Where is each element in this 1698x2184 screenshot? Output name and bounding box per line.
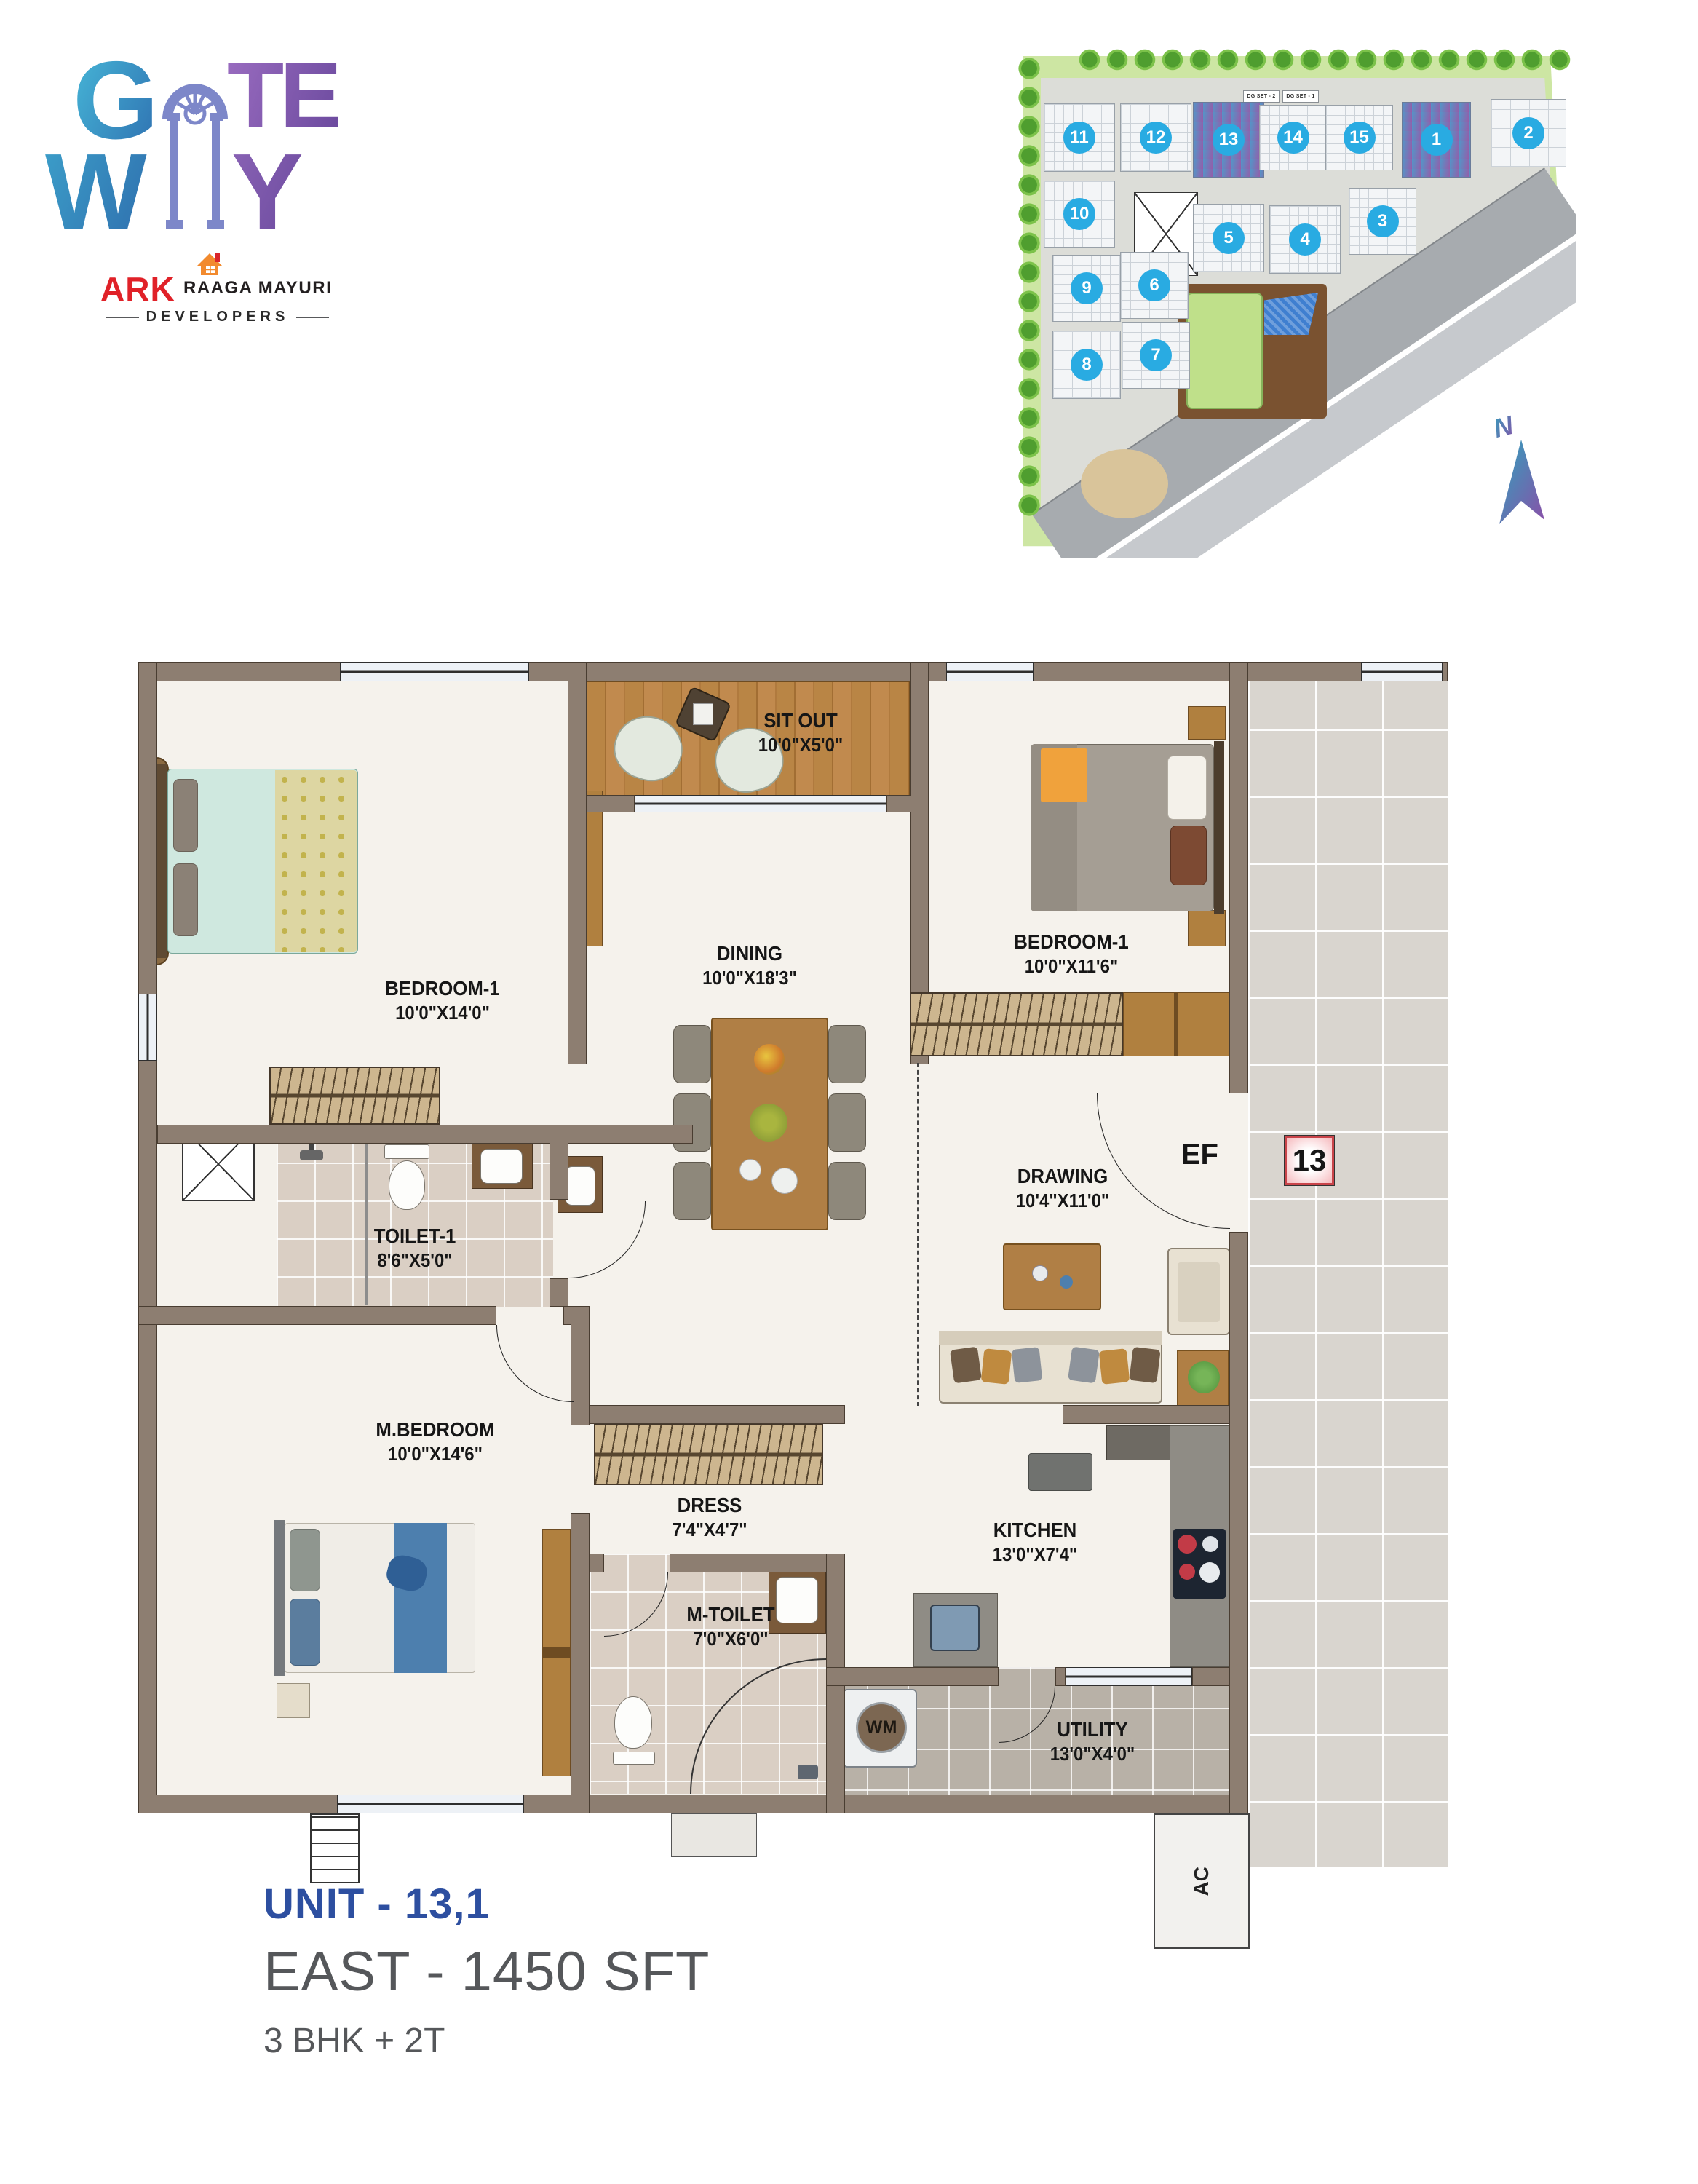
- label-bedroomR: BEDROOM-110'0"X11'6": [1014, 929, 1128, 978]
- wall-sitout-stub-left: [587, 795, 635, 812]
- common-corridor-floor: [1248, 662, 1448, 1867]
- tree-row-top: [1076, 44, 1576, 77]
- block-1-highlighted: 1: [1402, 102, 1471, 178]
- label-dress: DRESS7'4"X4'7": [672, 1492, 747, 1542]
- developer-abbr: ARK: [100, 269, 175, 309]
- brochure-page: G TE W Y ARK RAAGA MAYURI: [0, 0, 1698, 2184]
- wardrobe-bedroomL: [269, 1067, 440, 1125]
- wall-dress-top: [590, 1405, 845, 1424]
- ledge: [671, 1813, 757, 1857]
- logo-letters-te: TE: [227, 50, 338, 143]
- label-utility: UTILITY13'0"X4'0": [1050, 1717, 1135, 1766]
- dg-set-2-label: DG SET - 2: [1243, 90, 1280, 103]
- dg-set-1-label: DG SET - 1: [1282, 90, 1319, 103]
- window-mbedroom: [337, 1795, 524, 1813]
- logo-letter-w: W: [45, 138, 147, 246]
- label-mtoilet: M-TOILET7'0"X6'0": [686, 1602, 774, 1651]
- logo-letter-y: Y: [231, 138, 304, 246]
- unit-number-badge: 13: [1285, 1136, 1334, 1185]
- wardrobe-dress: [594, 1424, 823, 1485]
- unit-info: UNIT - 13,1 EAST - 1450 SFT 3 BHK + 2T: [263, 1880, 710, 2061]
- wardrobe-bedroomR: [910, 992, 1123, 1056]
- service-ladder: [310, 1813, 360, 1883]
- floor-plan: WM: [131, 655, 1448, 1966]
- wall-mtoilet-top-b: [670, 1554, 845, 1572]
- block-9: 9: [1052, 255, 1121, 322]
- block-7: 7: [1122, 322, 1190, 389]
- block-4: 4: [1269, 205, 1341, 274]
- gateway-arch-icon: [159, 47, 231, 232]
- label-kitchen: KITCHEN13'0"X7'4": [993, 1517, 1078, 1567]
- block-14: 14: [1259, 105, 1327, 170]
- wm-label: WM: [866, 1717, 897, 1738]
- north-label: N: [1491, 410, 1517, 443]
- block-10: 10: [1044, 181, 1115, 248]
- label-dining: DINING10'0"X18'3": [702, 941, 797, 990]
- wardrobe-bedroomR-wood: [1123, 992, 1229, 1056]
- wall-toilet1-top: [157, 1125, 693, 1144]
- tree-column-left: [1013, 54, 1048, 523]
- developer-division: DEVELOPERS: [146, 309, 290, 325]
- label-sitout: SIT OUT10'0"X5'0": [758, 708, 844, 757]
- wall-mbedroom-right-b: [571, 1513, 590, 1813]
- wall-utility-top-c: [1192, 1667, 1229, 1686]
- block-12: 12: [1120, 103, 1191, 172]
- window-bedroomL: [340, 662, 529, 681]
- ac-label: AC: [1190, 1867, 1213, 1896]
- open-plan-divider: [917, 1063, 919, 1406]
- developer-name: RAAGA MAYURI: [183, 278, 332, 298]
- block-3: 3: [1349, 188, 1416, 255]
- window-corridor: [1361, 662, 1443, 681]
- divider-line-right: [296, 317, 329, 318]
- label-drawing: DRAWING10'4"X11'0": [1016, 1163, 1110, 1213]
- block-5: 5: [1193, 204, 1264, 272]
- wall-left: [138, 662, 157, 1813]
- lawn: [1186, 293, 1263, 409]
- ac-ledge: AC: [1154, 1813, 1250, 1949]
- block-13-highlighted: 13: [1193, 102, 1264, 178]
- wall-kitchen-top: [1063, 1405, 1229, 1424]
- wall-toilet1-right-a: [550, 1125, 568, 1200]
- play-area: [1081, 449, 1168, 518]
- gateway-logo: G TE W Y ARK RAAGA MAYURI: [44, 36, 349, 328]
- developer-division-row: DEVELOPERS: [106, 309, 329, 325]
- entry-label: EF: [1156, 1139, 1218, 1171]
- unit-orientation-area: EAST - 1450 SFT: [263, 1940, 710, 2003]
- window-bedroomR: [946, 662, 1034, 681]
- wall-utility-top-b: [1055, 1667, 1066, 1686]
- wall-top: [138, 662, 1448, 681]
- wall-toilet1-right-b: [550, 1278, 568, 1307]
- label-mbedroom: M.BEDROOM10'0"X14'6": [376, 1417, 494, 1466]
- slider-sitout: [635, 795, 886, 812]
- wall-bottom: [138, 1795, 1248, 1813]
- north-arrow: N: [1483, 409, 1556, 555]
- window-utility: [1066, 1667, 1192, 1686]
- wall-sitout-stub-right: [886, 795, 911, 812]
- mbed-wardrobe: [542, 1529, 571, 1776]
- wall-utility-top-a: [826, 1667, 999, 1686]
- unit-configuration: 3 BHK + 2T: [263, 2021, 710, 2061]
- unit-title: UNIT - 13,1: [263, 1880, 710, 1928]
- wall-bedroomL-dining: [568, 662, 587, 1064]
- site-master-plan: DG SET - 2 DG SET - 1 11 12 13 14 15 1 2…: [1012, 38, 1576, 558]
- block-8: 8: [1052, 331, 1121, 399]
- block-11: 11: [1044, 103, 1115, 172]
- wall-mbedroom-top-a: [138, 1306, 496, 1325]
- label-toilet1: TOILET-18'6"X5'0": [374, 1223, 456, 1273]
- block-2: 2: [1491, 99, 1566, 167]
- wall-mtoilet-top-a: [590, 1554, 604, 1572]
- block-6: 6: [1120, 252, 1189, 319]
- wall-right-lower: [1229, 1232, 1248, 1813]
- label-bedroomL: BEDROOM-110'0"X14'0": [385, 976, 499, 1025]
- window-left-wall: [138, 994, 157, 1061]
- house-icon: [194, 249, 227, 277]
- block-15: 15: [1325, 105, 1393, 170]
- wall-right-upper: [1229, 662, 1248, 1093]
- divider-line-left: [106, 317, 139, 318]
